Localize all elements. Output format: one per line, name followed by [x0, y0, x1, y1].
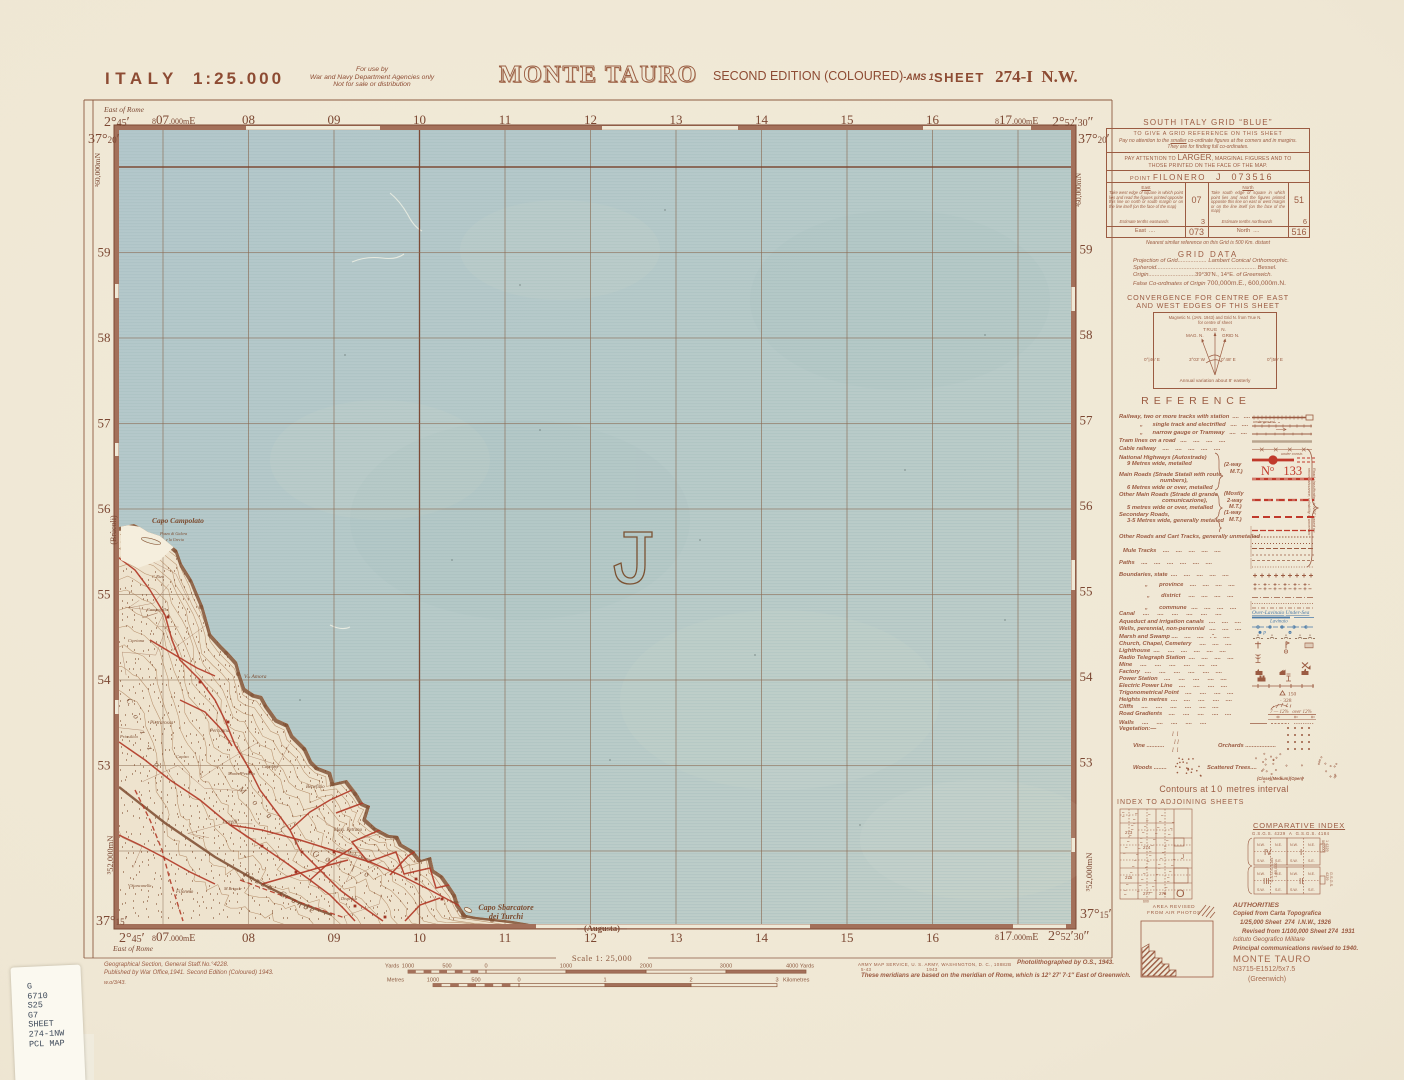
svg-text:2: 2: [689, 978, 692, 984]
svg-text:Dispensa: Dispensa: [340, 896, 357, 901]
svg-text:817.000mE: 817.000mE: [995, 928, 1038, 943]
svg-text:N.W.: N.W.: [1257, 872, 1265, 876]
svg-text:59: 59: [1080, 242, 1093, 257]
svg-text:Cipriana: Cipriana: [128, 638, 145, 643]
svg-text:l l: l l: [1172, 748, 1179, 754]
svg-text:1000: 1000: [402, 964, 414, 970]
svg-text:0: 0: [517, 978, 520, 984]
svg-text:Scale 1: 25,000: Scale 1: 25,000: [572, 953, 632, 963]
svg-text:54: 54: [98, 672, 112, 687]
svg-text:55: 55: [1080, 584, 1093, 599]
svg-text:III: III: [1263, 877, 1270, 886]
svg-text:57: 57: [98, 416, 112, 431]
svg-text:Lavinaio: Lavinaio: [1269, 620, 1288, 625]
svg-text:14: 14: [755, 930, 769, 945]
svg-text:Yards: Yards: [385, 964, 399, 970]
svg-text:08: 08: [242, 930, 255, 945]
svg-text:³52,000mN: ³52,000mN: [105, 836, 115, 875]
svg-text:Campolello: Campolello: [147, 607, 169, 612]
svg-text:807.000mE: 807.000mE: [152, 112, 195, 127]
svg-text:³52,000mN: ³52,000mN: [1084, 853, 1094, 892]
svg-text:10: 10: [413, 930, 426, 945]
svg-text:12: 12: [584, 112, 597, 127]
svg-text:15: 15: [841, 930, 854, 945]
svg-text:V.Stancanella: V.Stancanella: [128, 883, 151, 888]
svg-text:Pozzo di Galera: Pozzo di Galera: [159, 531, 187, 536]
svg-text:Capo Sbarcatore: Capo Sbarcatore: [478, 903, 534, 912]
svg-text:4000 Yards: 4000 Yards: [786, 964, 814, 970]
svg-text:N.W.: N.W.: [1290, 843, 1298, 847]
svg-text:0: 0: [484, 964, 487, 970]
svg-text:08: 08: [242, 112, 255, 127]
svg-text:55: 55: [98, 587, 111, 602]
svg-text:15: 15: [841, 112, 854, 127]
svg-text:Pietrarossa: Pietrarossa: [149, 721, 174, 726]
svg-text:Monte Pezzolo: Monte Pezzolo: [227, 771, 256, 776]
svg-text:³60,000mN: ³60,000mN: [93, 152, 102, 187]
svg-text:O: O: [1176, 888, 1185, 900]
svg-text:(Brùcoli): (Brùcoli): [109, 515, 118, 545]
svg-text:37°20′: 37°20′: [1078, 132, 1110, 147]
svg-text:Metres: Metres: [387, 978, 404, 984]
svg-text:S.E.: S.E.: [1308, 859, 1315, 863]
svg-text:2°45′: 2°45′: [104, 115, 130, 130]
svg-text:e la Grecia: e la Grecia: [166, 537, 184, 542]
svg-text:N.E.: N.E.: [1275, 843, 1282, 847]
svg-text:58: 58: [1080, 327, 1093, 342]
svg-text:277: 277: [1143, 891, 1151, 896]
svg-text:N.E.: N.E.: [1308, 843, 1315, 847]
svg-text:Trovelli: Trovelli: [222, 820, 238, 825]
svg-text:09: 09: [328, 112, 341, 127]
svg-text:N.E.: N.E.: [1308, 872, 1315, 876]
svg-text:59: 59: [98, 245, 111, 260]
svg-text:3: 3: [775, 978, 778, 984]
svg-text:57: 57: [1080, 413, 1094, 428]
svg-text:Filonero: Filonero: [175, 890, 194, 895]
svg-text:S.W.: S.W.: [1290, 888, 1298, 892]
svg-text:53: 53: [98, 758, 111, 773]
svg-text:3000: 3000: [720, 964, 732, 970]
svg-text:600: 600: [1143, 900, 1149, 904]
svg-text:I: I: [1300, 848, 1302, 857]
svg-text:N.W.: N.W.: [1290, 872, 1298, 876]
svg-text:1: 1: [603, 978, 606, 984]
svg-text:1000: 1000: [560, 964, 572, 970]
svg-text:P: P: [1262, 632, 1266, 637]
svg-text:274: 274: [1143, 845, 1151, 850]
svg-text:37°20′: 37°20′: [88, 132, 120, 147]
svg-text:58: 58: [98, 330, 111, 345]
svg-text:37°15′: 37°15′: [96, 914, 128, 929]
svg-text:817.000mE: 817.000mE: [995, 112, 1038, 127]
svg-text:Capo Campolato: Capo Campolato: [152, 516, 204, 525]
svg-text:dei Turchi: dei Turchi: [489, 912, 524, 921]
svg-text:C.Rizo: C.Rizo: [152, 574, 165, 579]
svg-text:Kilometres: Kilometres: [783, 978, 810, 984]
svg-text:Capizo: Capizo: [176, 754, 190, 759]
svg-text:Sorgte: Sorgte: [450, 899, 460, 904]
svg-text:M.Brigale: M.Brigale: [223, 886, 242, 891]
svg-text:2°52′30″: 2°52′30″: [1052, 115, 1094, 130]
svg-text:10: 10: [413, 112, 426, 127]
svg-text:S.W.: S.W.: [1257, 888, 1265, 892]
svg-text:Capolere: Capolere: [262, 764, 279, 769]
svg-text:1000: 1000: [427, 978, 439, 984]
svg-text:N.W.: N.W.: [1257, 843, 1265, 847]
svg-text:54: 54: [1080, 669, 1094, 684]
svg-text:37°15′: 37°15′: [1080, 907, 1112, 922]
svg-text:16: 16: [926, 930, 940, 945]
svg-text:11: 11: [499, 112, 512, 127]
svg-text:14: 14: [755, 112, 769, 127]
svg-text:S.W.: S.W.: [1290, 859, 1298, 863]
svg-text:· 328: · 328: [1280, 698, 1292, 704]
svg-text:l l: l l: [1174, 740, 1179, 746]
svg-text:East of Rome: East of Rome: [103, 105, 145, 114]
svg-text:150: 150: [1288, 692, 1297, 698]
svg-text:500: 500: [442, 964, 451, 970]
svg-text:³60,000mN: ³60,000mN: [1074, 172, 1083, 207]
svg-text:09: 09: [328, 930, 341, 945]
svg-text:S.E.: S.E.: [1308, 888, 1315, 892]
svg-text:56: 56: [1080, 498, 1094, 513]
svg-text:16: 16: [926, 112, 940, 127]
svg-text:13: 13: [670, 930, 683, 945]
svg-text:East of Rome: East of Rome: [112, 944, 154, 953]
svg-text:807.000mE: 807.000mE: [152, 929, 195, 944]
svg-text:500: 500: [471, 978, 480, 984]
svg-text:2000: 2000: [640, 964, 652, 970]
svg-text:276: 276: [1125, 875, 1133, 880]
svg-text:II: II: [1299, 877, 1303, 886]
svg-text:273: 273: [1125, 830, 1133, 835]
svg-text:Mass. Petrano: Mass. Petrano: [333, 828, 363, 833]
svg-text:53: 53: [1080, 755, 1093, 770]
svg-text:Over-Lavinaio Under-Sea: Over-Lavinaio Under-Sea: [1252, 610, 1310, 616]
svg-text:13: 13: [670, 112, 683, 127]
svg-text:278: 278: [1159, 891, 1167, 896]
svg-text:Priosilica: Priosilica: [119, 734, 138, 739]
svg-text:Benefizio: Benefizio: [306, 785, 325, 790]
svg-text:11: 11: [499, 930, 512, 945]
svg-text:S.W.: S.W.: [1257, 859, 1265, 863]
svg-text:Percugna: Percugna: [209, 729, 230, 734]
svg-text:56: 56: [98, 501, 112, 516]
svg-text:2°52′30″: 2°52′30″: [1048, 929, 1090, 944]
svg-text:(Augusta): (Augusta): [584, 923, 620, 933]
svg-text:l l: l l: [1172, 732, 1179, 738]
